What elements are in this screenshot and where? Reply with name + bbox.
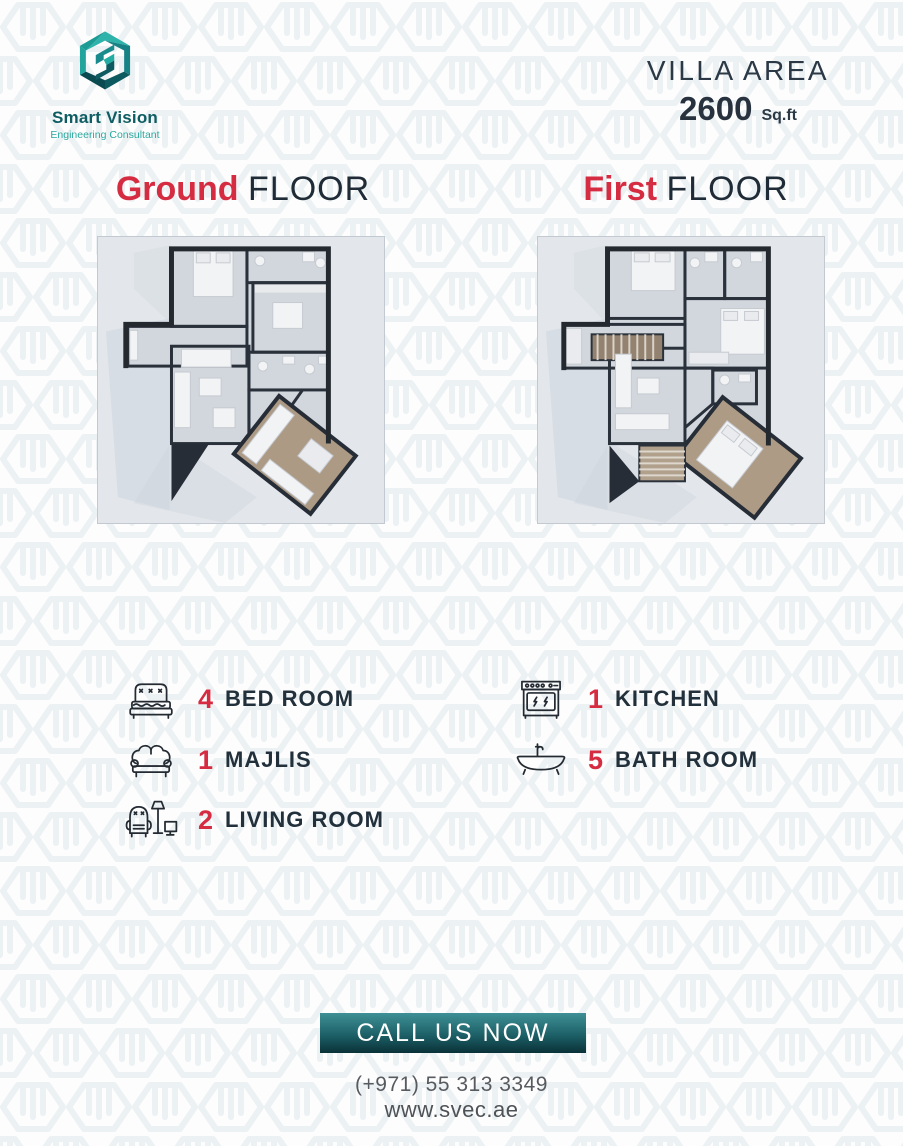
feature-bedroom: 4 BED ROOM: [122, 676, 354, 722]
feature-bathroom: 5 BATH ROOM: [512, 737, 758, 783]
feature-majlis: 1 MAJLIS: [122, 737, 312, 783]
ground-floor-plan: [97, 236, 385, 524]
first-floor-plan: [537, 236, 825, 524]
villa-area-label: VILLA AREA: [613, 55, 863, 87]
first-floor-title-rest: FLOOR: [667, 170, 789, 208]
bedroom-label: BED ROOM: [225, 686, 354, 712]
website-link[interactable]: www.svec.ae: [0, 1097, 903, 1123]
phone-number: (+971) 55 313 3349: [0, 1073, 903, 1097]
sofa-icon: [122, 739, 180, 781]
bedroom-count: 4: [198, 684, 213, 715]
majlis-count: 1: [198, 745, 213, 776]
ground-floor-title-rest: FLOOR: [248, 170, 370, 208]
stove-icon: [512, 677, 570, 721]
bathroom-label: BATH ROOM: [615, 747, 758, 773]
hexagon-s-logo-icon: [72, 30, 138, 104]
bathroom-count: 5: [588, 745, 603, 776]
villa-area-block: VILLA AREA 2600 Sq.ft: [613, 55, 863, 128]
living-room-label: LIVING ROOM: [225, 807, 384, 833]
first-floor-title: First FLOOR: [536, 170, 836, 209]
first-floor-title-accent: First: [583, 170, 657, 208]
ground-floor-title-accent: Ground: [116, 170, 239, 208]
kitchen-count: 1: [588, 684, 603, 715]
bed-icon: [122, 678, 180, 720]
majlis-label: MAJLIS: [225, 747, 312, 773]
living-room-count: 2: [198, 805, 213, 836]
brand-block: Smart Vision Engineering Consultant: [30, 30, 180, 141]
brand-tagline: Engineering Consultant: [30, 129, 180, 141]
call-us-now-button[interactable]: CALL US NOW: [320, 1013, 586, 1053]
villa-area-value: 2600: [679, 90, 752, 128]
villa-area-unit: Sq.ft: [761, 107, 797, 125]
feature-living-room: 2 LIVING ROOM: [122, 797, 384, 843]
villa-flyer-page: Smart Vision Engineering Consultant VILL…: [0, 0, 903, 1146]
armchair-lamp-icon: [122, 798, 180, 842]
bathtub-icon: [512, 738, 570, 782]
brand-name: Smart Vision: [30, 108, 180, 128]
kitchen-label: KITCHEN: [615, 686, 720, 712]
feature-kitchen: 1 KITCHEN: [512, 676, 720, 722]
ground-floor-title: Ground FLOOR: [93, 170, 393, 209]
